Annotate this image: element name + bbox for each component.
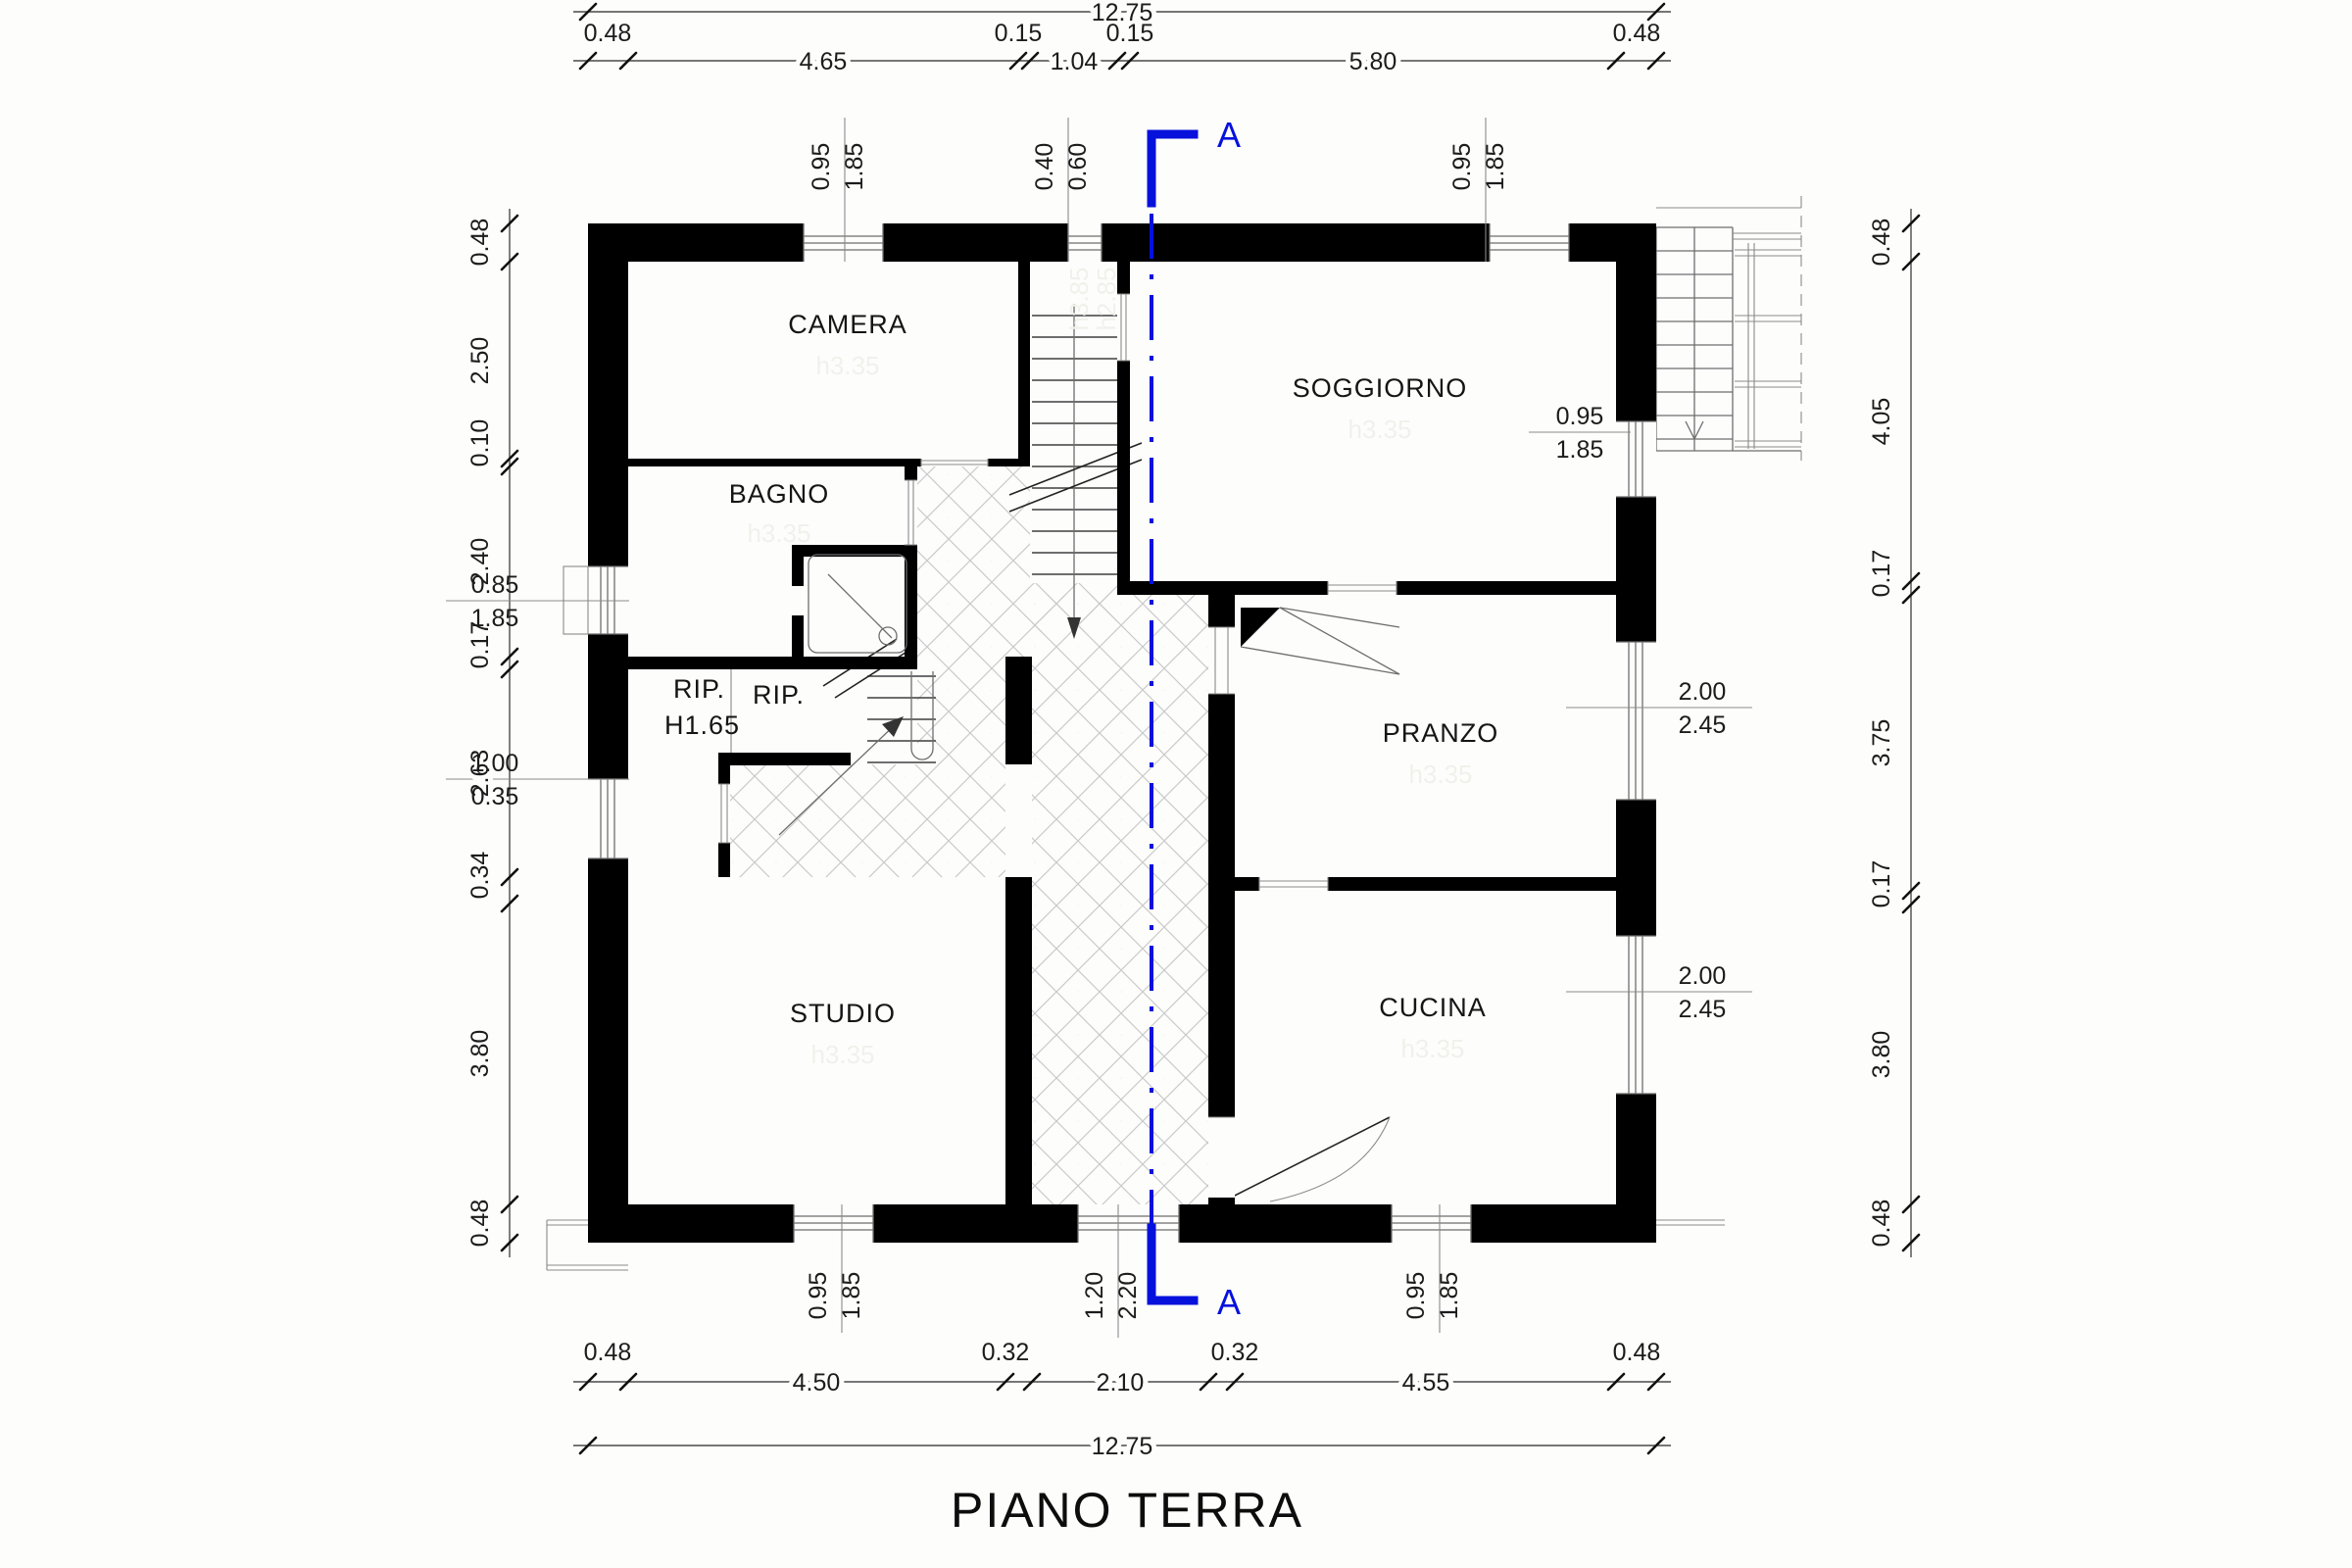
- dim-left-1: 0.48: [466, 219, 494, 267]
- room-label-rip1: RIP.: [673, 674, 725, 704]
- dim-bottom-6: 4.55: [1402, 1369, 1450, 1396]
- dim-bottom-7: 0.48: [1613, 1339, 1661, 1366]
- room-sublabel-rip1: H1.65: [664, 710, 740, 740]
- dim-left-2: 2.50: [466, 337, 494, 385]
- label-bottom-studio-h: 1.85: [838, 1272, 865, 1320]
- label-top-w1-w: 0.95: [808, 143, 835, 191]
- label-right-pranzo-w: 2.00: [1679, 678, 1727, 706]
- dim-right-1: 0.48: [1868, 219, 1895, 267]
- dim-right-3: 0.17: [1868, 550, 1895, 598]
- label-top-door-w: 0.40: [1031, 143, 1058, 191]
- fireplace-detail: [1241, 608, 1399, 674]
- door-swing-cucina: [1227, 1117, 1390, 1201]
- dim-left-7: 0.34: [466, 852, 494, 900]
- label-left-bagno-h: 1.85: [471, 605, 519, 632]
- section-label-bottom: A: [1217, 1282, 1241, 1322]
- label-bottom-door-w: 1.20: [1081, 1272, 1108, 1320]
- label-left-rip-w: 1.00: [471, 750, 519, 777]
- label-right-cucina-w: 2.00: [1679, 962, 1727, 990]
- dim-top-7: 0.48: [1613, 20, 1661, 47]
- label-left-rip-h: 0.35: [471, 783, 519, 810]
- dim-right-6: 3.80: [1868, 1031, 1895, 1079]
- external-staircase: [1656, 196, 1801, 461]
- stair-railing: [1735, 196, 1801, 461]
- shower-tray: [808, 555, 906, 653]
- section-label-top: A: [1217, 115, 1241, 155]
- room-label-camera: CAMERA: [788, 310, 907, 339]
- room-label-studio: STUDIO: [790, 999, 896, 1028]
- dim-left-9: 0.48: [466, 1200, 494, 1248]
- dim-bottom-5: 0.32: [1211, 1339, 1259, 1366]
- label-top-door-h: 0.60: [1064, 143, 1092, 191]
- room-label-rip2: RIP.: [753, 680, 805, 710]
- room-note-soggiorno: h3.35: [1347, 415, 1411, 444]
- dim-bottom-4: 2.10: [1097, 1369, 1145, 1396]
- dim-left-3: 0.10: [466, 419, 494, 467]
- label-bottom-cucina-w: 0.95: [1402, 1272, 1430, 1320]
- label-right-pranzo-h: 2.45: [1679, 711, 1727, 739]
- dim-right-2: 4.05: [1868, 398, 1895, 446]
- page-title: PIANO TERRA: [951, 1483, 1303, 1538]
- dim-bottom-1: 0.48: [584, 1339, 632, 1366]
- dim-bottom-total: 12.75: [1092, 1433, 1153, 1460]
- room-note-pranzo: h3.35: [1408, 759, 1472, 789]
- room-label-pranzo: PRANZO: [1383, 718, 1499, 748]
- label-bottom-studio-w: 0.95: [805, 1272, 832, 1320]
- floor-plan-drawing: A A 12.75 0.48 4.65 0.15 1.04 0.15 5.80 …: [0, 0, 2352, 1568]
- dim-right-7: 0.48: [1868, 1200, 1895, 1248]
- label-bottom-door-h: 2.20: [1114, 1272, 1142, 1320]
- room-label-soggiorno: SOGGIORNO: [1293, 373, 1468, 403]
- label-bottom-cucina-h: 1.85: [1436, 1272, 1463, 1320]
- room-note-camera: h3.35: [815, 351, 879, 380]
- room-note-studio: h3.35: [810, 1040, 874, 1069]
- dim-right-5: 0.17: [1868, 860, 1895, 908]
- vestibule-note-a: h3.85: [1064, 267, 1094, 330]
- label-right-sogg-h: 1.85: [1556, 436, 1604, 464]
- label-top-w2-h: 1.85: [1482, 143, 1509, 191]
- dim-top-3: 0.15: [995, 20, 1043, 47]
- label-top-w1-h: 1.85: [841, 143, 868, 191]
- label-top-w2-w: 0.95: [1448, 143, 1476, 191]
- room-note-bagno: h3.35: [747, 518, 810, 548]
- dim-bottom-2: 4.50: [793, 1369, 841, 1396]
- dim-top-4: 1.04: [1051, 48, 1099, 75]
- dim-top-5: 0.15: [1106, 20, 1154, 47]
- dim-left-8: 3.80: [466, 1030, 494, 1078]
- dim-right-4: 3.75: [1868, 719, 1895, 767]
- label-right-sogg-w: 0.95: [1556, 403, 1604, 430]
- room-label-cucina: CUCINA: [1379, 993, 1487, 1022]
- dim-top-6: 5.80: [1349, 48, 1397, 75]
- dim-bottom-3: 0.32: [982, 1339, 1030, 1366]
- room-label-bagno: BAGNO: [729, 479, 830, 509]
- dim-top-2: 4.65: [800, 48, 848, 75]
- room-note-cucina: h3.35: [1400, 1034, 1464, 1063]
- vestibule-note-b: h2.85: [1092, 267, 1121, 330]
- floor-plan-page: A A 12.75 0.48 4.65 0.15 1.04 0.15 5.80 …: [0, 0, 2352, 1568]
- label-left-bagno-w: 0.85: [471, 571, 519, 599]
- dim-top-1: 0.48: [584, 20, 632, 47]
- label-right-cucina-h: 2.45: [1679, 996, 1727, 1023]
